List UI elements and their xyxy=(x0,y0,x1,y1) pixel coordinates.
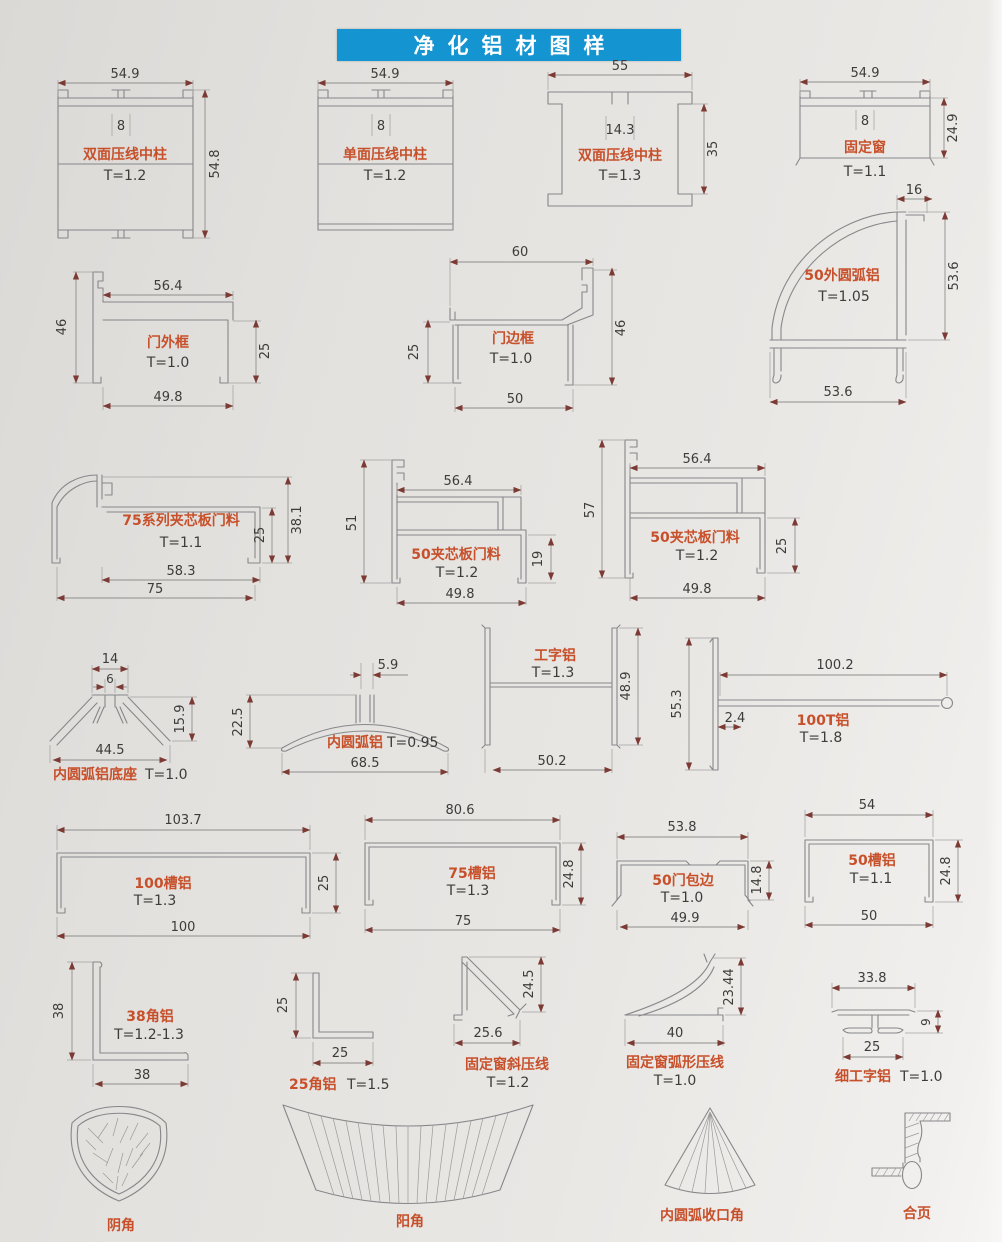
p5-thickness: T=1.0 xyxy=(146,355,190,371)
p7-top-dim: 16 xyxy=(906,183,923,198)
p22-bottom-dim: 40 xyxy=(667,1026,684,1041)
p11-top-dim: 14 xyxy=(102,652,119,667)
p3-width-dim: 55 xyxy=(612,59,629,74)
p9-bottom-dim: 49.8 xyxy=(446,587,475,602)
profile-p15: 103.7 25 100 100槽铝 T=1.3 xyxy=(45,800,360,949)
p10-left-dim: 57 xyxy=(583,502,598,519)
p4-thickness: T=1.1 xyxy=(843,164,887,180)
p6-bottom-dim: 50 xyxy=(507,392,524,407)
profile-p6: 60 25 46 50 门边框 T=1.0 xyxy=(405,240,675,434)
profile-p7: 16 53.6 53.6 50外圆弧铝 T=1.05 xyxy=(745,185,1000,429)
profile-p12: 5.9 22.5 68.5 内圆弧铝 T=0.95 xyxy=(230,645,475,794)
p9-drawing: 51 56.4 19 49.8 50夹芯板门料 T=1.2 xyxy=(350,445,590,625)
p14-left-dim: 55.3 xyxy=(670,690,685,719)
p7-name: 50外圆弧铝 xyxy=(804,267,879,284)
p18-name: 50槽铝 xyxy=(848,852,895,869)
p8-name: 75系列夹芯板门料 xyxy=(122,512,239,529)
profile-p19: 38 38 38角铝 T=1.2-1.3 xyxy=(45,955,230,1109)
p10-drawing: 57 56.4 25 49.8 50夹芯板门料 T=1.2 xyxy=(585,430,830,620)
p17-drawing: 53.8 14.8 49.9 50门包边 T=1.0 xyxy=(610,790,800,945)
p5-bottom-dim: 49.8 xyxy=(154,390,183,405)
p19-drawing: 38 38 38角铝 T=1.2-1.3 xyxy=(45,955,230,1105)
p2-slot-dim: 8 xyxy=(377,119,385,134)
p8-bottom-inner-dim: 58.3 xyxy=(167,564,196,579)
profile-p16: 80.6 24.8 75 75槽铝 T=1.3 xyxy=(355,790,615,949)
p7-thickness: T=1.05 xyxy=(817,289,869,305)
p24-outline xyxy=(71,1107,167,1202)
p13-thickness: T=1.3 xyxy=(531,665,575,681)
p16-name: 75槽铝 xyxy=(448,865,495,882)
p2-name: 单面压线中柱 xyxy=(343,146,427,163)
page-title-banner: 净化铝材图样 xyxy=(337,29,681,61)
p16-top-dim: 80.6 xyxy=(446,803,475,818)
p1-drawing: 54.9 8 54.8 双面压线中柱 T=1.2 xyxy=(48,62,243,262)
profile-p3: 55 14.3 35 双面压线中柱 T=1.3 xyxy=(540,62,725,246)
p10-right-dim: 25 xyxy=(775,538,790,555)
p14-top-dim: 100.2 xyxy=(816,658,853,673)
p7-right-dim: 53.6 xyxy=(947,262,962,291)
p12-left-dim: 22.5 xyxy=(231,708,246,737)
p23-outline xyxy=(832,1010,915,1033)
p7-bottom-dim: 53.6 xyxy=(824,385,853,400)
p15-thickness: T=1.3 xyxy=(133,893,177,909)
p24-name: 阴角 xyxy=(107,1217,135,1234)
p6-drawing: 60 25 46 50 门边框 T=1.0 xyxy=(405,240,675,430)
p16-thickness: T=1.3 xyxy=(446,883,490,899)
p9-left-dim: 51 xyxy=(345,515,360,532)
p2-width-dim: 54.9 xyxy=(371,67,400,82)
p16-drawing: 80.6 24.8 75 75槽铝 T=1.3 xyxy=(355,790,615,945)
p17-name: 50门包边 xyxy=(652,872,714,889)
profile-p17: 53.8 14.8 49.9 50门包边 T=1.0 xyxy=(610,790,800,949)
p6-right-dim: 46 xyxy=(614,320,629,337)
p10-name: 50夹芯板门料 xyxy=(650,529,739,546)
p4-width-dim: 54.9 xyxy=(851,66,880,81)
p21-thickness: T=1.2 xyxy=(486,1075,530,1091)
p9-name: 50夹芯板门料 xyxy=(411,546,500,563)
p13-right-dim: 48.9 xyxy=(619,672,634,701)
p19-left-dim: 38 xyxy=(52,1003,67,1020)
p15-name: 100槽铝 xyxy=(134,875,191,892)
p18-drawing: 54 24.8 50 50槽铝 T=1.1 xyxy=(795,795,1000,940)
p22-thickness: T=1.0 xyxy=(653,1073,697,1089)
p20-bottom-dim: 25 xyxy=(332,1046,349,1061)
p13-drawing: 48.9 50.2 工字铝 T=1.3 xyxy=(480,615,675,795)
profile-p9: 51 56.4 19 49.8 50夹芯板门料 T=1.2 xyxy=(350,445,590,629)
p8-thickness: T=1.1 xyxy=(159,535,203,551)
p20-thickness: T=1.5 xyxy=(346,1077,390,1093)
p10-thickness: T=1.2 xyxy=(675,548,719,564)
profile-p8: 25 38.1 58.3 75 75系列夹芯板门料 T=1.1 xyxy=(35,435,340,619)
p5-left-dim: 46 xyxy=(55,319,70,336)
p15-top-dim: 103.7 xyxy=(164,813,201,828)
p16-bottom-dim: 75 xyxy=(455,914,472,929)
p11-right-dim: 15.9 xyxy=(173,705,188,734)
p22-outline xyxy=(625,954,723,1021)
p15-drawing: 103.7 25 100 100槽铝 T=1.3 xyxy=(45,800,360,945)
profile-p14: 55.3 100.2 2.4 100T铝 T=1.8 xyxy=(675,630,995,794)
p23-name: 细工字铝 xyxy=(835,1068,891,1085)
p3-thickness: T=1.3 xyxy=(598,168,642,184)
p11-outline xyxy=(50,695,170,745)
p23-thickness: T=1.0 xyxy=(899,1069,943,1085)
p19-bottom-dim: 38 xyxy=(134,1068,151,1083)
profile-p24: 阴角 xyxy=(58,1098,203,1242)
p13-bottom-dim: 50.2 xyxy=(538,754,567,769)
p3-name: 双面压线中柱 xyxy=(578,147,662,164)
p17-bottom-dim: 49.9 xyxy=(671,911,700,926)
p8-drawing: 25 38.1 58.3 75 75系列夹芯板门料 T=1.1 xyxy=(35,435,340,615)
p20-drawing: 25 25 25角铝 T=1.5 xyxy=(275,960,400,1100)
p11-bottom-dim: 44.5 xyxy=(96,743,125,758)
p6-name: 门边框 xyxy=(492,330,534,347)
p25-drawing: 阳角 xyxy=(258,1095,563,1240)
p4-height-dim: 24.9 xyxy=(946,114,961,143)
p1-outline xyxy=(58,90,193,238)
p11-thickness: T=1.0 xyxy=(144,767,188,783)
p4-slot-dim: 8 xyxy=(861,114,869,129)
p1-slot-dim: 8 xyxy=(117,119,125,134)
p3-drawing: 55 14.3 35 双面压线中柱 T=1.3 xyxy=(540,62,725,242)
p27-name: 合页 xyxy=(903,1205,931,1222)
p3-height-dim: 35 xyxy=(706,141,721,158)
p4-name: 固定窗 xyxy=(844,139,886,156)
profile-p23: 33.8 9 25 细工字铝 T=1.0 xyxy=(810,955,995,1094)
p9-top-dim: 56.4 xyxy=(444,474,473,489)
p26-outline xyxy=(665,1108,755,1194)
p14-thickness: T=1.8 xyxy=(799,730,843,746)
p8-right-inner-dim: 25 xyxy=(253,527,268,544)
p9-thickness: T=1.2 xyxy=(435,565,479,581)
p12-top-dim: 5.9 xyxy=(378,658,399,673)
p21-name: 固定窗斜压线 xyxy=(465,1056,549,1073)
profile-p2: 54.9 8 单面压线中柱 T=1.2 xyxy=(308,62,483,266)
p22-name: 固定窗弧形压线 xyxy=(626,1054,724,1071)
p14-drawing: 55.3 100.2 2.4 100T铝 T=1.8 xyxy=(675,630,995,790)
profile-p20: 25 25 25角铝 T=1.5 xyxy=(275,960,400,1104)
profile-p27: 合页 xyxy=(843,1098,993,1232)
p21-drawing: 24.5 25.6 固定窗斜压线 T=1.2 xyxy=(450,950,600,1105)
p1-thickness: T=1.2 xyxy=(103,168,147,184)
p1-name: 双面压线中柱 xyxy=(83,146,167,163)
p11-name: 内圆弧铝底座 xyxy=(53,766,137,783)
profile-p25: 阳角 xyxy=(258,1095,563,1242)
p17-right-dim: 14.8 xyxy=(750,866,765,895)
p27-drawing: 合页 xyxy=(843,1098,993,1228)
p23-bottom-dim: 25 xyxy=(864,1040,881,1055)
p8-right-outer-dim: 38.1 xyxy=(290,506,305,535)
p24-drawing: 阴角 xyxy=(58,1098,203,1238)
p23-top-dim: 33.8 xyxy=(858,971,887,986)
p21-bottom-dim: 25.6 xyxy=(474,1026,503,1041)
p20-left-dim: 25 xyxy=(276,997,291,1014)
p12-drawing: 5.9 22.5 68.5 内圆弧铝 T=0.95 xyxy=(230,645,475,790)
profile-p13: 48.9 50.2 工字铝 T=1.3 xyxy=(480,615,675,799)
p26-name: 内圆弧收口角 xyxy=(660,1207,744,1224)
p23-drawing: 33.8 9 25 细工字铝 T=1.0 xyxy=(810,955,995,1090)
p17-thickness: T=1.0 xyxy=(660,890,704,906)
p8-bottom-dim: 75 xyxy=(147,582,164,597)
p22-right-dim: 23.44 xyxy=(722,968,737,1005)
p20-outline xyxy=(313,973,373,1038)
p15-bottom-dim: 100 xyxy=(171,920,196,935)
p18-top-dim: 54 xyxy=(859,798,876,813)
profile-p5: 46 56.4 25 49.8 门外框 T=1.0 xyxy=(45,255,300,429)
p5-drawing: 46 56.4 25 49.8 门外框 T=1.0 xyxy=(45,255,300,425)
p12-bottom-dim: 68.5 xyxy=(351,756,380,771)
p15-right-dim: 25 xyxy=(317,875,332,892)
profile-p21: 24.5 25.6 固定窗斜压线 T=1.2 xyxy=(450,950,600,1109)
p6-left-dim: 25 xyxy=(407,344,422,361)
p6-top-dim: 60 xyxy=(512,245,529,260)
p5-name: 门外框 xyxy=(147,334,189,351)
p14-name: 100T铝 xyxy=(797,712,850,729)
p23-right-dim: 9 xyxy=(919,1018,933,1026)
profile-p1: 54.9 8 54.8 双面压线中柱 T=1.2 xyxy=(48,62,243,266)
p6-outline xyxy=(450,268,593,385)
p1-height-dim: 54.8 xyxy=(208,150,223,179)
p18-right-dim: 24.8 xyxy=(939,857,954,886)
p13-outline xyxy=(482,625,620,748)
profile-p18: 54 24.8 50 50槽铝 T=1.1 xyxy=(795,795,1000,944)
p19-thickness: T=1.2-1.3 xyxy=(113,1027,184,1043)
p21-right-dim: 24.5 xyxy=(522,970,537,999)
p5-top-dim: 56.4 xyxy=(154,279,183,294)
p6-thickness: T=1.0 xyxy=(489,351,533,367)
p16-right-dim: 24.8 xyxy=(562,860,577,889)
p12-thickness: T=0.95 xyxy=(386,735,438,751)
p13-name: 工字铝 xyxy=(534,647,576,664)
p25-name: 阳角 xyxy=(396,1213,424,1230)
p19-name: 38角铝 xyxy=(126,1008,173,1025)
p18-thickness: T=1.1 xyxy=(849,871,893,887)
p10-bottom-dim: 49.8 xyxy=(683,582,712,597)
p10-top-dim: 56.4 xyxy=(683,452,712,467)
p22-drawing: 23.44 40 固定窗弧形压线 T=1.0 xyxy=(615,950,795,1105)
p14-offset-dim: 2.4 xyxy=(725,711,746,726)
profile-p10: 57 56.4 25 49.8 50夹芯板门料 T=1.2 xyxy=(585,430,830,624)
p3-slot-dim: 14.3 xyxy=(606,123,635,138)
p2-thickness: T=1.2 xyxy=(363,168,407,184)
p20-name: 25角铝 xyxy=(289,1076,336,1093)
catalog-page: 净化铝材图样 54.9 8 54.8 双面压线中柱 T=1.2 xyxy=(0,0,1002,1242)
p27-outline xyxy=(872,1113,950,1189)
p26-drawing: 内圆弧收口角 xyxy=(640,1100,775,1235)
p2-drawing: 54.9 8 单面压线中柱 T=1.2 xyxy=(308,62,483,262)
p21-outline xyxy=(454,957,526,1020)
page-title: 净化铝材图样 xyxy=(401,30,618,60)
profile-p26: 内圆弧收口角 xyxy=(640,1100,775,1239)
p7-drawing: 16 53.6 53.6 50外圆弧铝 T=1.05 xyxy=(745,185,1000,425)
p9-right-dim: 19 xyxy=(531,551,546,568)
p18-bottom-dim: 50 xyxy=(861,909,878,924)
p17-top-dim: 53.8 xyxy=(668,820,697,835)
profile-p22: 23.44 40 固定窗弧形压线 T=1.0 xyxy=(615,950,795,1109)
p12-name: 内圆弧铝 xyxy=(327,734,383,751)
p11-slot-dim: 6 xyxy=(106,672,114,686)
p5-right-dim: 25 xyxy=(258,343,273,360)
p1-width-dim: 54.9 xyxy=(111,67,140,82)
